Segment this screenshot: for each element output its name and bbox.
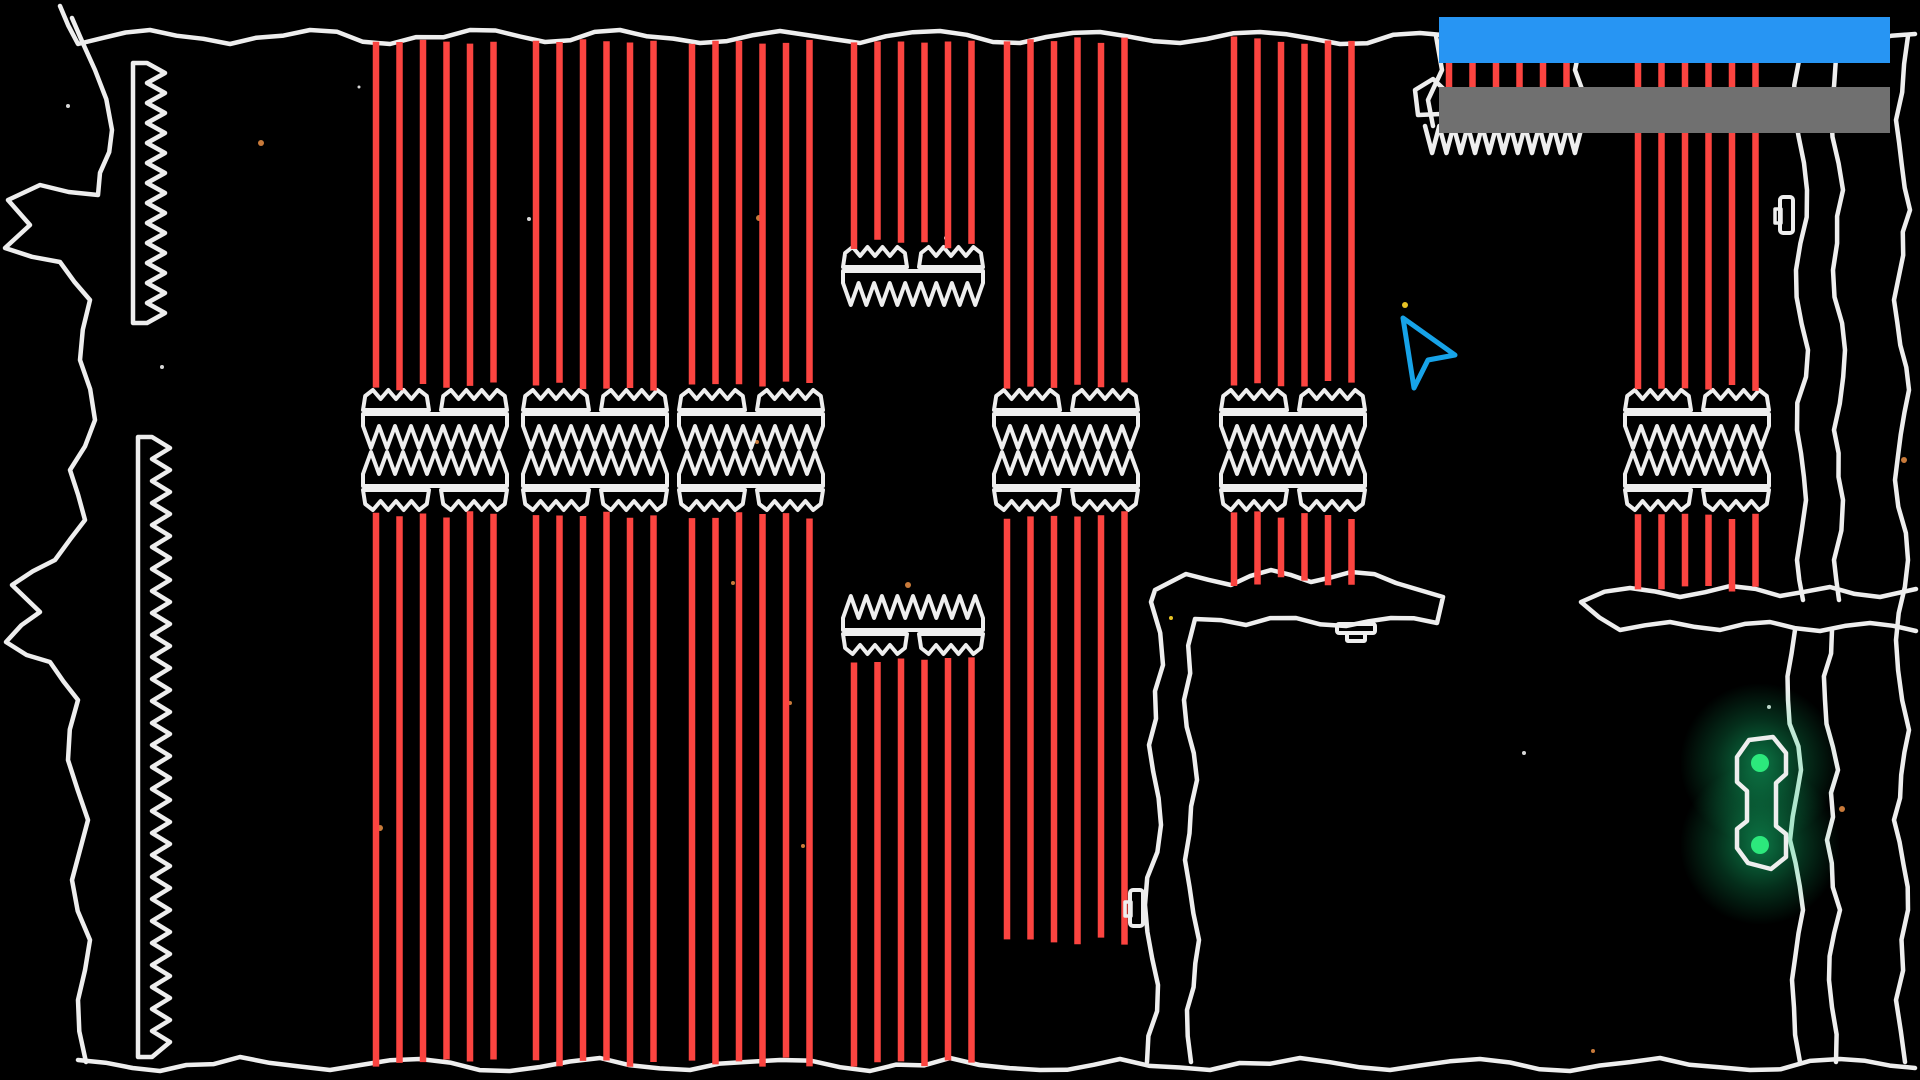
gate-assembly (1625, 390, 1769, 510)
gate-crown-top (1625, 390, 1691, 410)
mouse-cursor (1403, 318, 1455, 388)
gate-crown-top (441, 390, 507, 410)
gate-crown-bottom (601, 490, 667, 510)
game-canvas[interactable] (0, 0, 1920, 1080)
gate-crown-top (601, 390, 667, 410)
gate-crown-bottom (1625, 490, 1691, 510)
star-dot (358, 86, 361, 89)
star-dot (731, 581, 735, 585)
switch-handle[interactable] (1680, 683, 1840, 925)
wall-socket-icon (1775, 197, 1793, 233)
gate-assembly (523, 390, 667, 510)
gate-spikes-up (994, 452, 1138, 486)
gate-crown-top (523, 390, 589, 410)
laser-group-A (376, 40, 494, 1067)
gate-crown-top (1703, 390, 1769, 410)
laser-beams (376, 36, 1756, 1067)
star-dot (160, 365, 164, 369)
gate-crown-bottom (363, 490, 429, 510)
button-cap[interactable] (1347, 633, 1365, 641)
gate-assembly (994, 390, 1138, 510)
spike-strip (138, 437, 170, 1057)
bottom-bar (1439, 87, 1890, 133)
gate-spikes-up (843, 596, 983, 630)
star-dot (1901, 457, 1907, 463)
laser-gates (363, 247, 1769, 654)
star-dot (1591, 1049, 1595, 1053)
handle-node[interactable] (1751, 836, 1769, 854)
gate-assembly (1221, 390, 1365, 510)
gate-spikes-down (1625, 414, 1769, 448)
gate-assembly (363, 390, 507, 510)
gate-spikes-up (679, 452, 823, 486)
gate-crown-top (363, 390, 429, 410)
gate-crown-top (679, 390, 745, 410)
gate-spikes-down (1221, 414, 1365, 448)
star-dot (1169, 616, 1173, 620)
gate-spikes-down (523, 414, 667, 448)
laser-group-B (536, 39, 654, 1067)
star-dot (801, 844, 805, 848)
star-dot (527, 217, 531, 221)
gate-crown-bottom (1299, 490, 1365, 510)
gate-crown-bottom (441, 490, 507, 510)
gate-crown-top (843, 247, 907, 267)
terrain (5, 6, 1916, 1071)
star-dot (1522, 751, 1526, 755)
star-dot (258, 140, 264, 146)
gate-spikes-down (363, 414, 507, 448)
gate-crown-bottom (994, 490, 1060, 510)
mouse-cursor-icon (1403, 318, 1455, 388)
gate-crown-bottom (1221, 490, 1287, 510)
terrain-left-wall (5, 18, 112, 1062)
background-stars (66, 86, 1907, 1054)
gate-crown-bottom (1703, 490, 1769, 510)
star-dot (66, 104, 70, 108)
laser-group-C (692, 40, 810, 1067)
gate-crown-top (919, 247, 983, 267)
gate-spikes-up (363, 452, 507, 486)
terrain-right-wall (1894, 36, 1910, 1062)
gate-crown-top (1299, 390, 1365, 410)
gate-crown-bottom (757, 490, 823, 510)
handle-node[interactable] (1751, 754, 1769, 772)
gate-spikes-down (679, 414, 823, 448)
gate-spikes-up (523, 452, 667, 486)
spike-strip (133, 63, 165, 323)
gate-crown-bottom (523, 490, 589, 510)
gate-crown-top (1221, 390, 1287, 410)
star-dot (1402, 302, 1408, 308)
terrain-floor (78, 1057, 1915, 1071)
gate-spikes-up (1221, 452, 1365, 486)
top-bar (1439, 17, 1890, 63)
gate-spikes-down (994, 414, 1138, 448)
gate-crown-top (757, 390, 823, 410)
gate-crown-top (1072, 390, 1138, 410)
game-viewport (0, 0, 1920, 1080)
terrain-cave-left-wall (1145, 570, 1443, 1062)
gate-spikes-down (843, 271, 983, 305)
gate-crown-bottom (843, 634, 907, 654)
terrain-right-plateau (1581, 586, 1916, 631)
gate-crown-bottom (1072, 490, 1138, 510)
gate-assembly (679, 390, 823, 510)
gate-spikes-up (1625, 452, 1769, 486)
gate-crown-top (994, 390, 1060, 410)
laser-group-D (854, 41, 972, 1067)
gate-assembly (843, 596, 983, 654)
star-dot (905, 582, 911, 588)
gate-assembly (843, 247, 983, 305)
star-dot (1839, 806, 1845, 812)
gate-crown-bottom (919, 634, 983, 654)
gate-crown-bottom (679, 490, 745, 510)
wall-spike-strips (133, 63, 170, 1057)
